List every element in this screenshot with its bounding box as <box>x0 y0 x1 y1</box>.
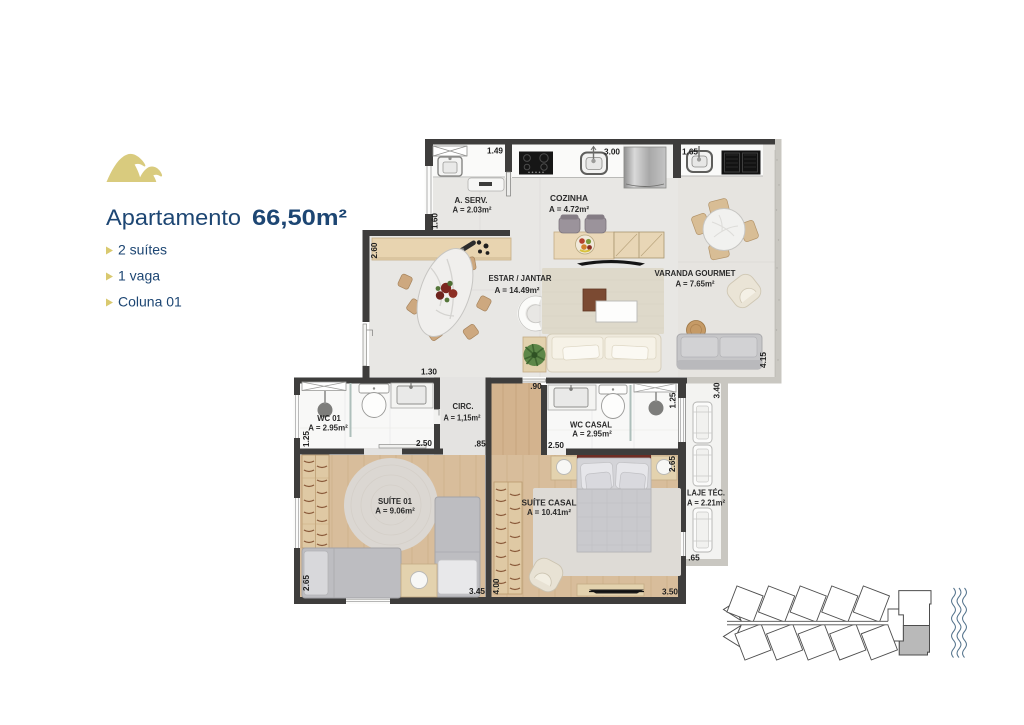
svg-text:2.65: 2.65 <box>301 575 311 591</box>
svg-text:1.25: 1.25 <box>668 392 678 408</box>
svg-text:2.65: 2.65 <box>667 456 677 472</box>
svg-text:1.49: 1.49 <box>487 146 503 156</box>
svg-text:A = 1,15m²: A = 1,15m² <box>444 414 481 423</box>
svg-text:1.65: 1.65 <box>682 147 698 157</box>
svg-text:A = 4.72m²: A = 4.72m² <box>549 205 589 214</box>
svg-text:WC 01: WC 01 <box>317 414 341 423</box>
svg-text:ESTAR / JANTAR: ESTAR / JANTAR <box>489 274 552 283</box>
svg-text:CIRC.: CIRC. <box>453 402 474 411</box>
svg-text:A = 9.06m²: A = 9.06m² <box>375 507 415 516</box>
svg-text:1.25: 1.25 <box>301 431 311 447</box>
svg-text:A = 7.65m²: A = 7.65m² <box>676 280 715 289</box>
svg-text:A = 2.95m²: A = 2.95m² <box>308 424 348 433</box>
svg-text:3.50: 3.50 <box>662 587 678 597</box>
svg-text:2.50: 2.50 <box>416 438 432 448</box>
svg-text:4.15: 4.15 <box>758 352 768 368</box>
svg-text:4.00: 4.00 <box>491 578 501 594</box>
svg-text:A = 14.49m²: A = 14.49m² <box>495 286 540 295</box>
svg-text:1.60: 1.60 <box>430 213 440 229</box>
svg-text:1.30: 1.30 <box>421 367 437 377</box>
svg-text:VARANDA GOURMET: VARANDA GOURMET <box>655 269 736 278</box>
svg-text:A. SERV.: A. SERV. <box>455 196 488 205</box>
svg-text:COZINHA: COZINHA <box>550 194 588 203</box>
svg-text:2.50: 2.50 <box>548 440 564 450</box>
svg-text:A = 10.41m²: A = 10.41m² <box>527 508 571 517</box>
svg-text:.90: .90 <box>530 381 542 391</box>
svg-text:SUÍTE 01: SUÍTE 01 <box>378 497 413 506</box>
svg-text:66,50m²: 66,50m² <box>252 205 348 230</box>
svg-text:A = 2.21m²: A = 2.21m² <box>687 499 725 508</box>
svg-text:LAJE TÉC.: LAJE TÉC. <box>687 489 725 498</box>
svg-text:WC CASAL: WC CASAL <box>570 421 612 430</box>
svg-text:Coluna 01: Coluna 01 <box>118 294 182 310</box>
svg-text:.65: .65 <box>688 553 700 563</box>
svg-text:.85: .85 <box>474 439 486 449</box>
svg-text:A = 2.03m²: A = 2.03m² <box>453 206 492 215</box>
svg-text:2.60: 2.60 <box>369 242 379 258</box>
svg-text:3.40: 3.40 <box>712 382 722 398</box>
svg-text:1 vaga: 1 vaga <box>118 268 160 284</box>
svg-text:2 suítes: 2 suítes <box>118 242 167 258</box>
svg-text:3.00: 3.00 <box>604 147 620 157</box>
svg-text:A = 2.95m²: A = 2.95m² <box>572 430 612 439</box>
svg-text:3.45: 3.45 <box>469 586 485 596</box>
svg-text:Apartamento: Apartamento <box>106 205 241 230</box>
svg-text:SUÍTE CASAL: SUÍTE CASAL <box>522 499 577 508</box>
